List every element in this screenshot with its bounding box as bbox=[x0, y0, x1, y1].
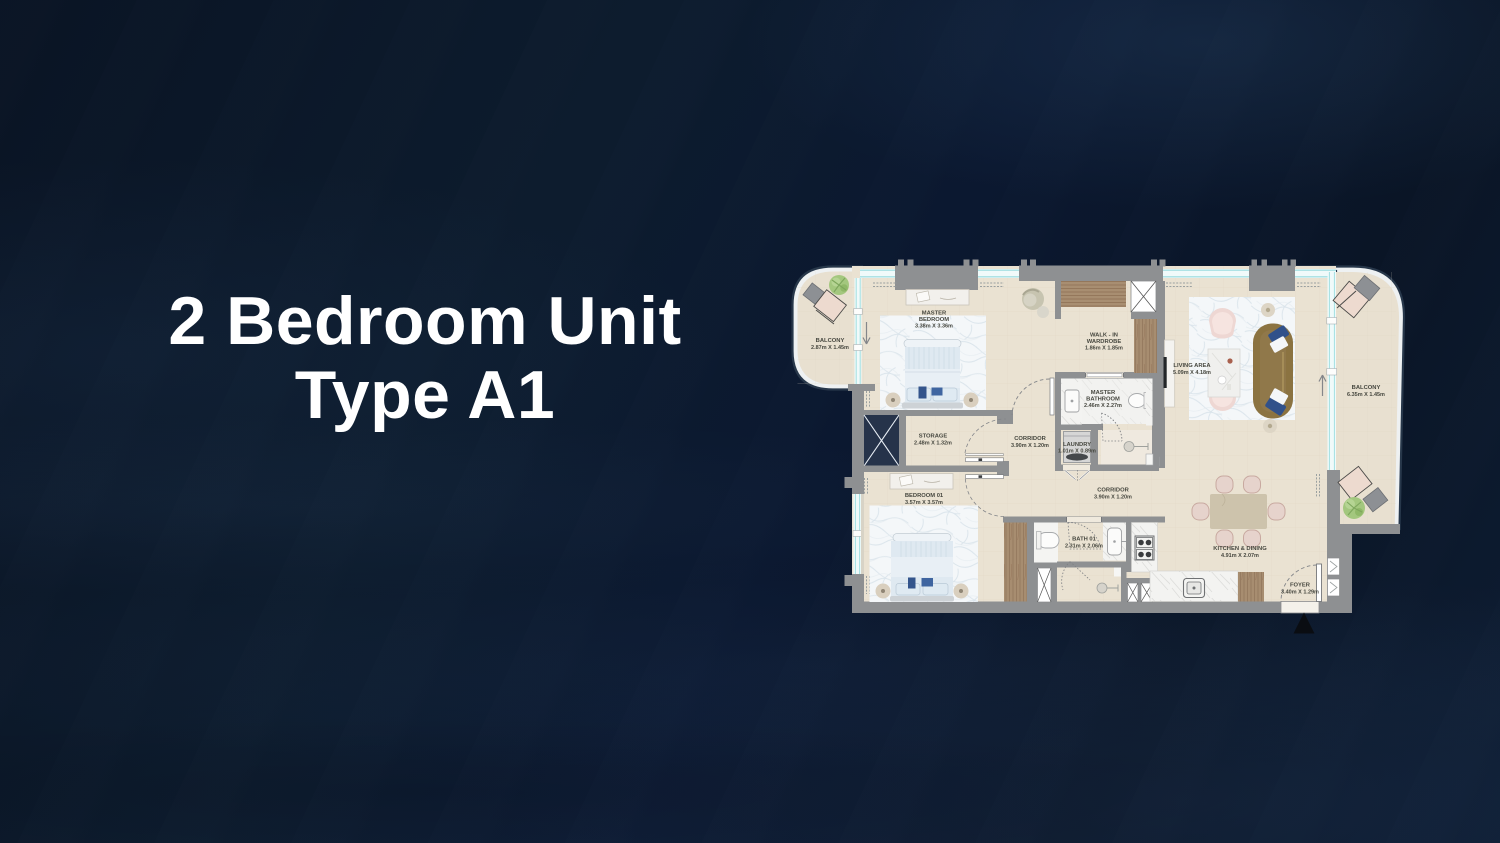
svg-text:3.90m X 1.20m: 3.90m X 1.20m bbox=[1011, 443, 1049, 449]
svg-text:6.35m X 1.45m: 6.35m X 1.45m bbox=[1347, 392, 1385, 398]
svg-text:2.31m X 2.06m: 2.31m X 2.06m bbox=[1065, 544, 1103, 550]
svg-text:CORRIDOR: CORRIDOR bbox=[1097, 488, 1129, 494]
svg-text:CORRIDOR: CORRIDOR bbox=[1014, 436, 1046, 442]
svg-text:3.38m X 3.36m: 3.38m X 3.36m bbox=[915, 324, 953, 330]
svg-text:2.87m X 1.45m: 2.87m X 1.45m bbox=[811, 345, 849, 351]
svg-text:BATH 01: BATH 01 bbox=[1072, 537, 1097, 543]
svg-text:3.40m X 1.29m: 3.40m X 1.29m bbox=[1281, 590, 1319, 596]
svg-text:STORAGE: STORAGE bbox=[919, 434, 948, 440]
svg-text:WALK - IN: WALK - IN bbox=[1090, 333, 1118, 339]
svg-text:WARDROBE: WARDROBE bbox=[1087, 339, 1122, 345]
svg-text:3.90m X 1.20m: 3.90m X 1.20m bbox=[1094, 495, 1132, 501]
svg-text:5.09m X 4.18m: 5.09m X 4.18m bbox=[1173, 370, 1211, 376]
svg-text:FOYER: FOYER bbox=[1290, 583, 1311, 589]
svg-text:MASTER: MASTER bbox=[1091, 390, 1116, 396]
svg-text:3.57m X 3.57m: 3.57m X 3.57m bbox=[905, 500, 943, 506]
svg-text:BALCONY: BALCONY bbox=[1352, 385, 1381, 391]
svg-text:BATHROOM: BATHROOM bbox=[1086, 397, 1120, 403]
svg-text:4.91m X 2.07m: 4.91m X 2.07m bbox=[1221, 553, 1259, 559]
svg-text:MASTER: MASTER bbox=[922, 311, 947, 317]
svg-text:2.48m X 1.32m: 2.48m X 1.32m bbox=[914, 441, 952, 447]
svg-text:KITCHEN & DINING: KITCHEN & DINING bbox=[1213, 546, 1267, 552]
svg-text:BEDROOM 01: BEDROOM 01 bbox=[905, 493, 944, 499]
svg-text:BEDROOM: BEDROOM bbox=[919, 317, 949, 323]
svg-text:BALCONY: BALCONY bbox=[816, 338, 845, 344]
svg-text:1.86m X 1.85m: 1.86m X 1.85m bbox=[1085, 346, 1123, 352]
svg-text:LAUNDRY: LAUNDRY bbox=[1063, 442, 1091, 448]
svg-text:1.01m X 0.89m: 1.01m X 0.89m bbox=[1058, 449, 1096, 455]
svg-text:LIVING AREA: LIVING AREA bbox=[1173, 363, 1211, 369]
svg-text:2.46m X 2.27m: 2.46m X 2.27m bbox=[1084, 403, 1122, 409]
